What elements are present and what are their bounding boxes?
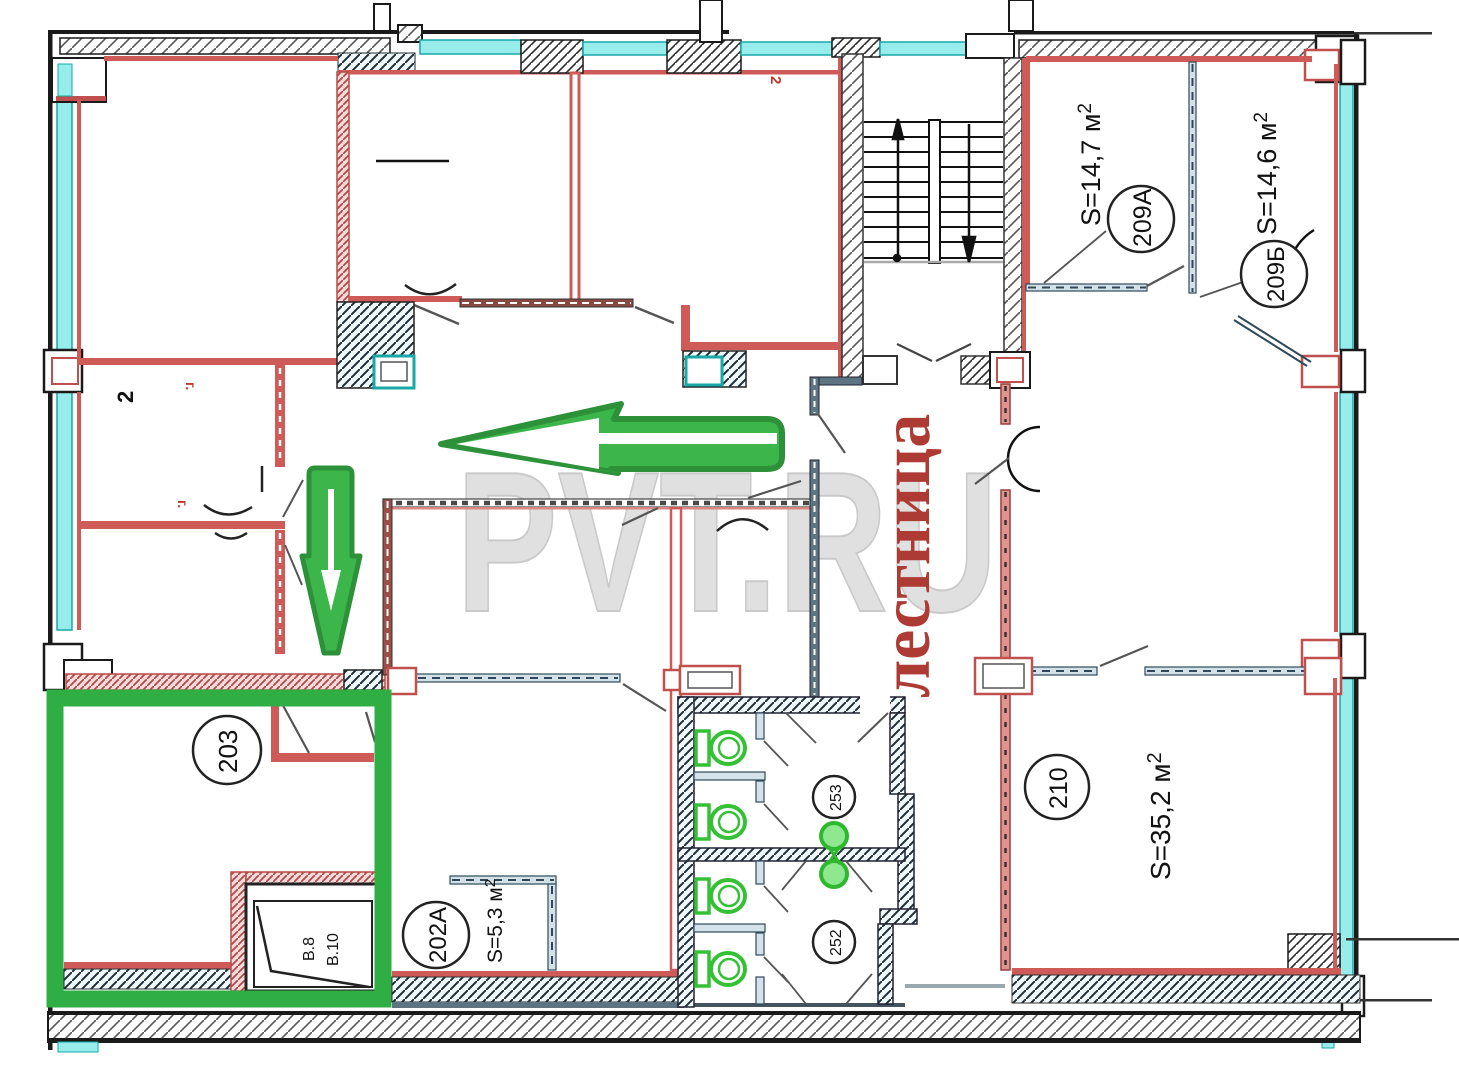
svg-text:202А: 202А (425, 907, 452, 963)
svg-text:203: 203 (213, 730, 243, 773)
svg-text:В.10: В.10 (325, 933, 342, 966)
svg-text:лестница: лестница (867, 414, 944, 698)
svg-text:г.: г. (175, 500, 191, 508)
svg-text:2: 2 (767, 76, 784, 84)
svg-text:S=14,6 м2: S=14,6 м2 (1251, 112, 1282, 235)
svg-text:S=14,7 м2: S=14,7 м2 (1075, 103, 1106, 226)
svg-text:г.: г. (183, 382, 199, 390)
svg-text:В.8: В.8 (301, 937, 318, 961)
svg-text:252: 252 (828, 929, 845, 956)
svg-text:S=5,3 м2: S=5,3 м2 (482, 879, 507, 963)
svg-text:253: 253 (828, 784, 845, 811)
svg-text:209Б: 209Б (1263, 246, 1290, 302)
svg-text:2: 2 (113, 391, 138, 403)
svg-text:S=35,2 м2: S=35,2 м2 (1144, 752, 1176, 880)
svg-text:209А: 209А (1129, 188, 1157, 247)
svg-text:210: 210 (1045, 767, 1073, 809)
